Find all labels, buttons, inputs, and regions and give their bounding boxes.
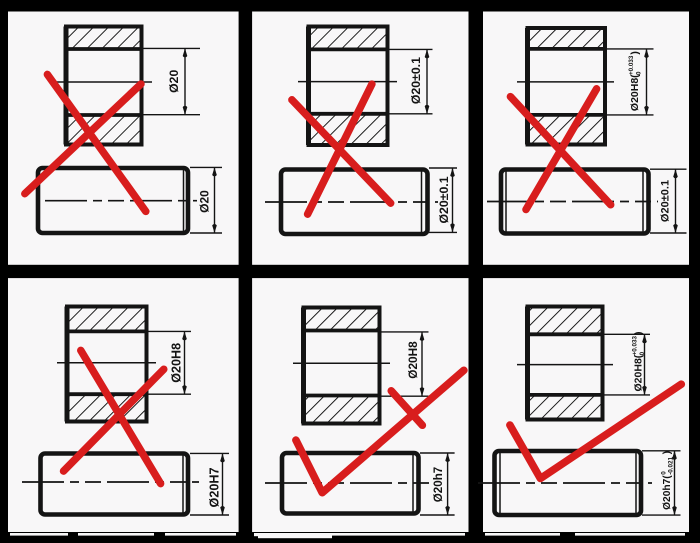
svg-text:+0.033: +0.033 — [632, 335, 639, 355]
svg-text:Ø20±0.1: Ø20±0.1 — [409, 57, 423, 104]
svg-text:-0.021: -0.021 — [668, 456, 675, 474]
svg-text:Ø20h7: Ø20h7 — [432, 467, 445, 502]
svg-text:Ø20H8(: Ø20H8( — [633, 354, 645, 391]
svg-text:Ø20: Ø20 — [167, 70, 181, 93]
svg-text:0: 0 — [661, 471, 668, 475]
svg-text:Ø20: Ø20 — [197, 190, 211, 213]
svg-text:Ø20H7: Ø20H7 — [208, 468, 222, 508]
svg-text:Ø20H8: Ø20H8 — [406, 341, 420, 379]
svg-text:Ø20H8(: Ø20H8( — [629, 74, 641, 111]
svg-text:): ) — [633, 332, 645, 336]
svg-text:+0.033: +0.033 — [628, 55, 635, 75]
svg-text:): ) — [629, 51, 641, 55]
svg-text:Ø20±0.1: Ø20±0.1 — [437, 176, 451, 223]
svg-text:Ø20h7(: Ø20h7( — [662, 475, 673, 510]
svg-text:0: 0 — [639, 351, 646, 355]
svg-text:Ø20H8: Ø20H8 — [170, 343, 184, 383]
svg-text:): ) — [662, 451, 673, 454]
svg-text:Ø20±0.1: Ø20±0.1 — [660, 180, 672, 222]
svg-text:0: 0 — [636, 71, 643, 75]
